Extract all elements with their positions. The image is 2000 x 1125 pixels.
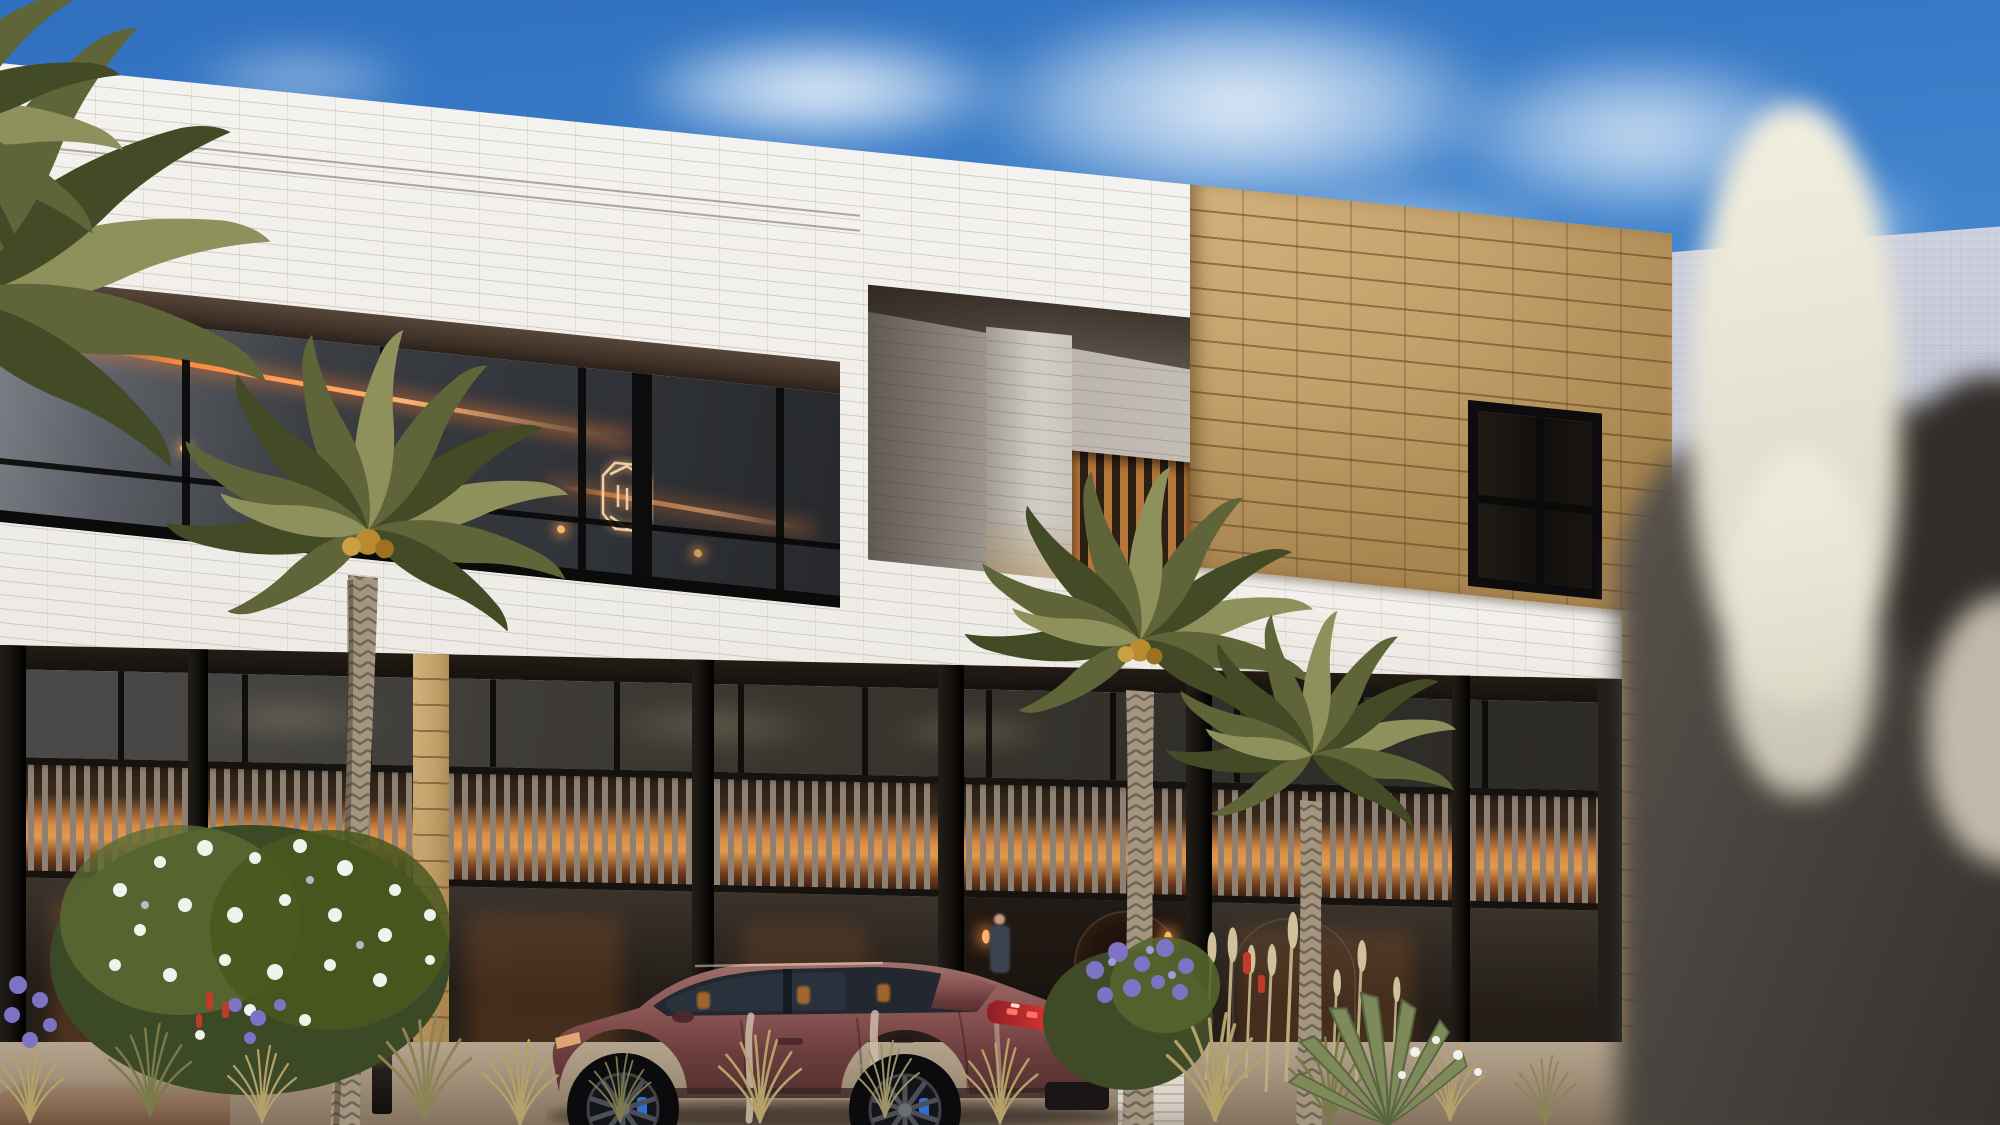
foreground-person-blurred [1628, 75, 2000, 1125]
architectural-rendering-scene: NATURE [0, 0, 2000, 1125]
person-headscarf-tail [1723, 455, 1878, 795]
